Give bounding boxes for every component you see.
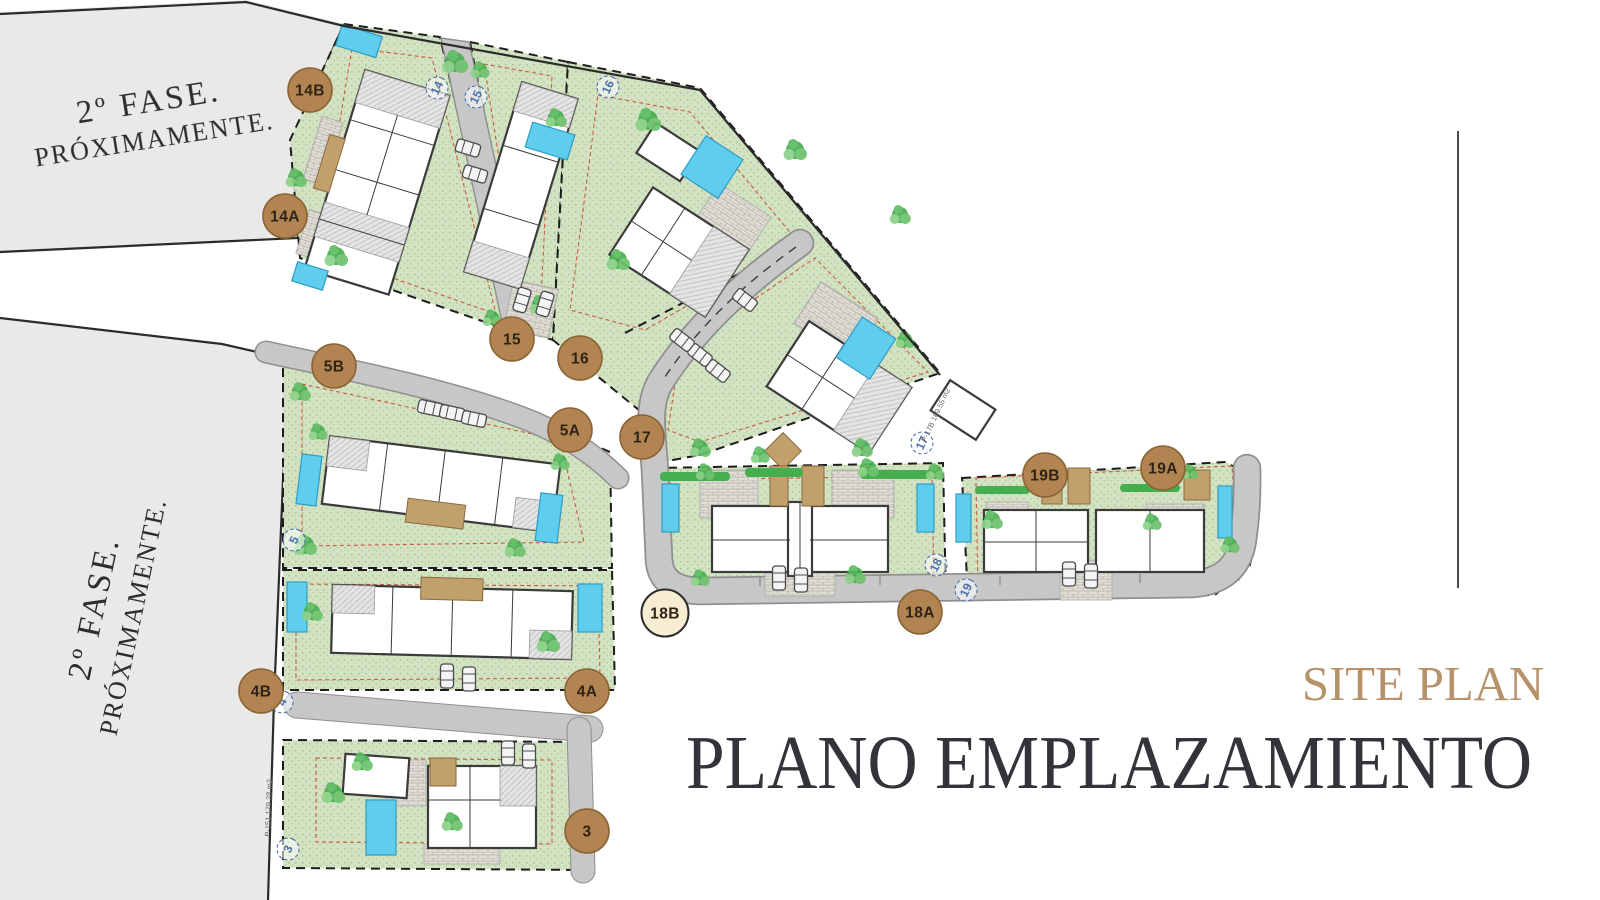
marker-19B[interactable]: 19B	[1023, 453, 1067, 497]
svg-text:3: 3	[582, 824, 591, 841]
svg-text:18A: 18A	[905, 605, 935, 622]
marker-17[interactable]: 17	[620, 415, 664, 459]
marker-19A[interactable]: 19A	[1141, 446, 1185, 490]
svg-text:14A: 14A	[270, 209, 300, 226]
plot-3-area-annotation: P-151 179.28 m2	[263, 779, 274, 837]
svg-text:16: 16	[571, 351, 589, 368]
svg-text:17: 17	[633, 430, 651, 447]
marker-4A[interactable]: 4A	[565, 669, 609, 713]
svg-text:5B: 5B	[324, 359, 345, 376]
marker-14B[interactable]: 14B	[288, 68, 332, 112]
villa-3	[343, 754, 536, 864]
svg-text:18B: 18B	[650, 606, 680, 623]
svg-text:19A: 19A	[1148, 461, 1178, 478]
svg-text:4B: 4B	[251, 684, 272, 701]
marker-3[interactable]: 3	[565, 809, 609, 853]
marker-5B[interactable]: 5B	[312, 344, 356, 388]
marker-5A[interactable]: 5A	[548, 408, 592, 452]
svg-text:4A: 4A	[577, 684, 598, 701]
site-plan-canvas: 14 15 16 17 18 19 5 4 3 P-151 179.28 m2 …	[0, 0, 1600, 900]
marker-14A[interactable]: 14A	[263, 194, 307, 238]
page-title: PLANO EMPLAZAMIENTO	[686, 721, 1532, 805]
marker-16[interactable]: 16	[558, 336, 602, 380]
svg-text:19B: 19B	[1030, 468, 1060, 485]
marker-18A[interactable]: 18A	[898, 590, 942, 634]
svg-text:15: 15	[503, 332, 521, 349]
svg-text:14B: 14B	[295, 83, 325, 100]
subtitle-site-plan: SITE PLAN	[1302, 656, 1544, 711]
marker-15[interactable]: 15	[490, 317, 534, 361]
marker-18B[interactable]: 18B	[642, 590, 689, 637]
svg-text:5A: 5A	[560, 423, 581, 440]
site-plan-page: 14 15 16 17 18 19 5 4 3 P-151 179.28 m2 …	[0, 0, 1600, 900]
marker-4B[interactable]: 4B	[239, 669, 283, 713]
